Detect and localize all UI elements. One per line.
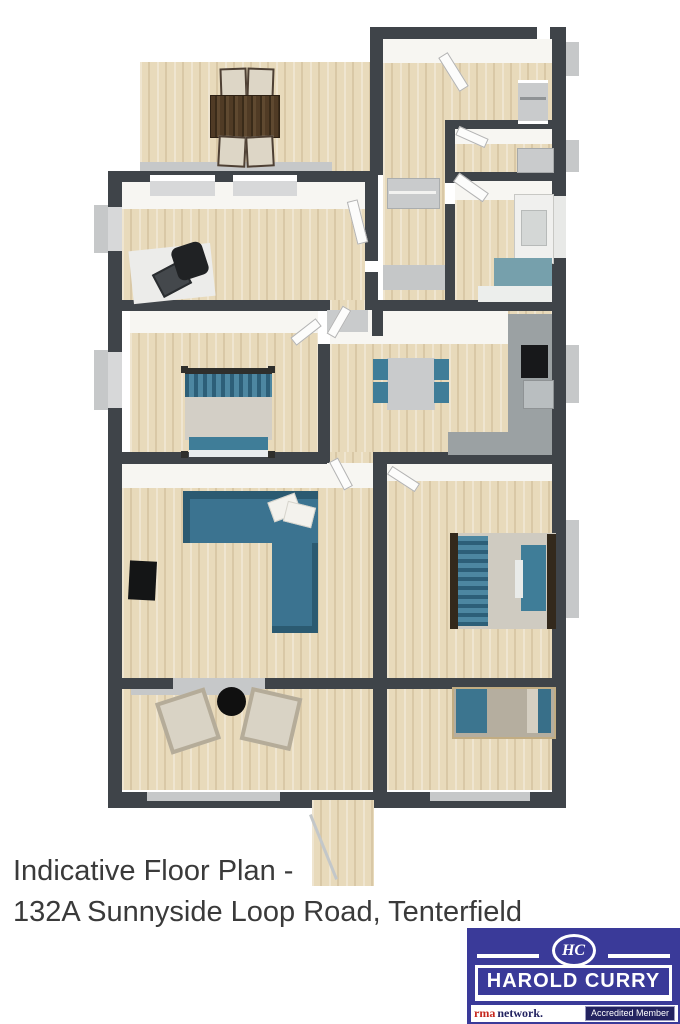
caption: Indicative Floor Plan - 132A Sunnyside L… [13, 851, 522, 933]
bed-post [181, 451, 188, 458]
wall-face [130, 310, 318, 333]
window-right-entry [566, 42, 579, 76]
window-bottom-1 [147, 792, 280, 801]
logo-rule-left [477, 954, 539, 958]
dining-table [210, 95, 280, 138]
logo-rule-right [608, 954, 670, 958]
bed-post [268, 451, 275, 458]
caption-line-2: 132A Sunnyside Loop Road, Tenterfield [13, 892, 522, 933]
hc-monogram-text: HC [562, 942, 585, 960]
round-table [217, 687, 246, 716]
wall-living-bedroom [373, 452, 387, 808]
laundry-unit [517, 148, 554, 173]
oven [523, 380, 554, 409]
window-office-2 [233, 181, 297, 196]
meals-chair [434, 359, 449, 380]
wall-left-outer [108, 171, 122, 808]
meals-chair [373, 382, 388, 403]
caption-line-1: Indicative Floor Plan - [13, 851, 522, 892]
window-left-inner [108, 207, 122, 251]
bed-frame [450, 533, 458, 629]
bed-pillow [538, 689, 551, 733]
bed-sheet [185, 397, 272, 440]
window-right-bedroom [566, 520, 579, 618]
closet-shelf-line [520, 97, 546, 100]
door-gap [537, 27, 550, 39]
sofa-side [312, 543, 318, 633]
entry-closet [518, 80, 548, 124]
bed-pillows [521, 545, 546, 611]
harold-curry-logo: HC HAROLD CURRY rma network. Accredited … [467, 928, 680, 1024]
network-strip: rma network. Accredited Member [471, 1005, 678, 1022]
wall-stub [372, 300, 383, 336]
wall-hall-right [445, 204, 455, 305]
window-right-kitchen [566, 345, 579, 403]
window-office-1 [150, 181, 215, 196]
agency-name-box: HAROLD CURRY [475, 965, 672, 998]
bed-frame [547, 534, 556, 629]
cooktop [521, 345, 548, 378]
sofa-end [272, 626, 318, 633]
bed-sheet-light [527, 689, 538, 733]
rma-text: rma [474, 1006, 495, 1021]
dining-chair [245, 135, 275, 167]
bed-foot [189, 450, 268, 457]
window-lintel [150, 171, 215, 175]
wall-entry-left [370, 27, 383, 175]
sofa-arm [183, 491, 190, 543]
hall-mat [383, 265, 445, 290]
bathtub-ledge [478, 286, 552, 302]
window-left-inner [108, 352, 122, 408]
window-right-laundry [566, 140, 579, 172]
accredited-member-badge: Accredited Member [585, 1006, 675, 1021]
bathroom-window [554, 196, 566, 258]
wall-office-right [365, 171, 378, 261]
window-lintel [233, 171, 297, 175]
logo-divider [475, 997, 672, 1001]
dining-chair [217, 135, 247, 167]
bed-pillow-trim [515, 560, 523, 598]
window-bottom-2 [430, 792, 530, 801]
wall-veranda [297, 171, 375, 182]
meals-table [387, 358, 435, 410]
bed-blanket [456, 689, 487, 733]
meals-chair [434, 382, 449, 403]
agency-name: HAROLD CURRY [487, 970, 660, 993]
bed-pillows [189, 437, 268, 450]
wall-veranda [215, 171, 233, 182]
bathtub [494, 258, 552, 286]
bed-blanket [458, 536, 488, 626]
wall-face [383, 39, 552, 63]
network-text: network. [497, 1006, 543, 1021]
meals-chair [373, 359, 388, 380]
basin [521, 210, 547, 246]
bed-blanket [185, 374, 272, 397]
page: { "caption": { "line1": "Indicative Floo… [0, 0, 680, 1024]
sofa-back [183, 491, 318, 499]
wall-bedroom1-right [318, 344, 330, 463]
cupboard-shelf-line [389, 191, 436, 194]
hc-monogram: HC [552, 934, 596, 967]
kitchen-counter-bottom [448, 432, 552, 455]
tv [128, 560, 157, 600]
